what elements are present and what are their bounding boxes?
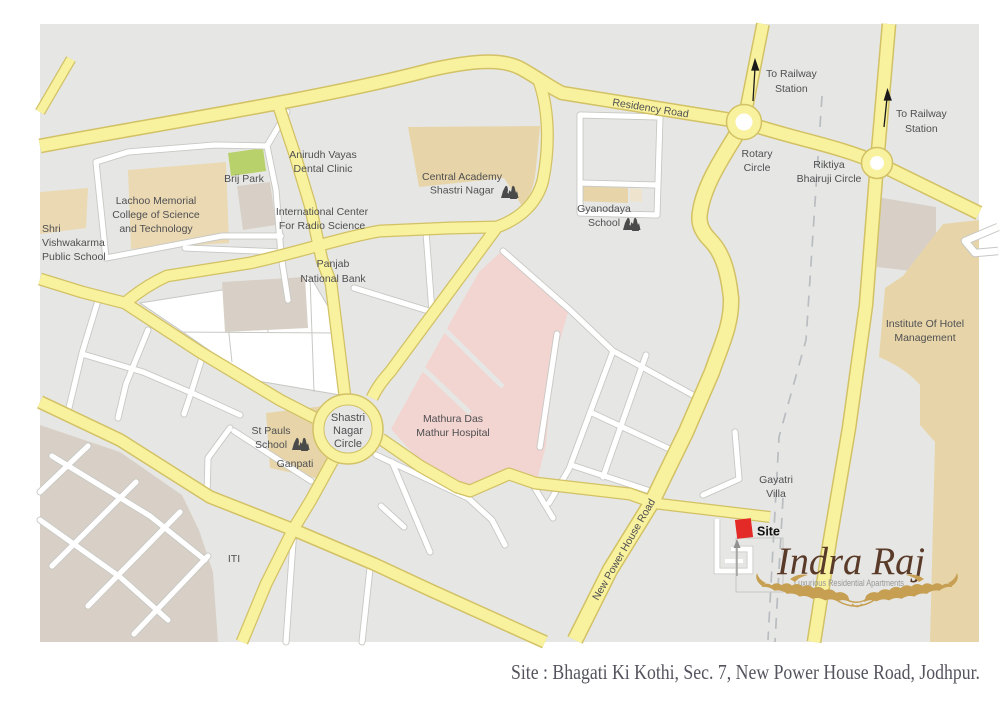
svg-text:Central Academy: Central Academy [422,171,503,183]
svg-text:Circle: Circle [334,438,362,450]
svg-text:Shri: Shri [42,223,61,235]
svg-text:For Radio Science: For Radio Science [279,220,366,232]
svg-text:Mathura Das: Mathura Das [423,413,483,425]
svg-text:Anirudh Vayas: Anirudh Vayas [289,149,357,161]
svg-text:St Pauls: St Pauls [251,425,290,437]
svg-text:School: School [588,217,620,229]
svg-text:To Railway: To Railway [896,108,948,120]
svg-text:Station: Station [905,123,938,135]
svg-text:Rotary: Rotary [742,148,774,160]
svg-text:National Bank: National Bank [300,273,366,285]
svg-text:Shastri: Shastri [331,412,365,424]
svg-text:ITI: ITI [228,553,240,565]
svg-text:Gyanodaya: Gyanodaya [577,203,631,215]
svg-text:Villa: Villa [766,488,786,500]
svg-text:Riktiya: Riktiya [813,159,845,171]
svg-text:Ganpati: Ganpati [277,458,314,470]
svg-text:Institute Of Hotel: Institute Of Hotel [886,318,964,330]
svg-text:Gayatri: Gayatri [759,474,793,486]
svg-text:School: School [255,439,287,451]
svg-text:Vishwakarma: Vishwakarma [42,237,105,249]
svg-text:Management: Management [894,332,955,344]
svg-text:Bhairuji Circle: Bhairuji Circle [797,173,862,185]
svg-text:College of Science: College of Science [112,209,200,221]
svg-text:To Railway: To Railway [766,68,818,80]
svg-text:Public School: Public School [42,251,106,263]
svg-text:Panjab: Panjab [317,258,350,270]
svg-text:Nagar: Nagar [333,425,363,437]
svg-text:Brij Park: Brij Park [224,173,264,185]
svg-text:Site : Bhagati Ki Kothi, Sec.: Site : Bhagati Ki Kothi, Sec. 7, New Pow… [511,660,980,684]
svg-text:Mathur Hospital: Mathur Hospital [416,427,490,439]
svg-text:Shastri Nagar: Shastri Nagar [430,185,495,197]
svg-text:Site: Site [757,525,780,539]
svg-text:Station: Station [775,83,808,95]
svg-text:Lachoo Memorial: Lachoo Memorial [116,195,197,207]
svg-text:and Technology: and Technology [119,223,193,235]
svg-text:Circle: Circle [744,162,771,174]
svg-text:International Center: International Center [276,206,369,218]
svg-text:Dental Clinic: Dental Clinic [294,163,353,175]
